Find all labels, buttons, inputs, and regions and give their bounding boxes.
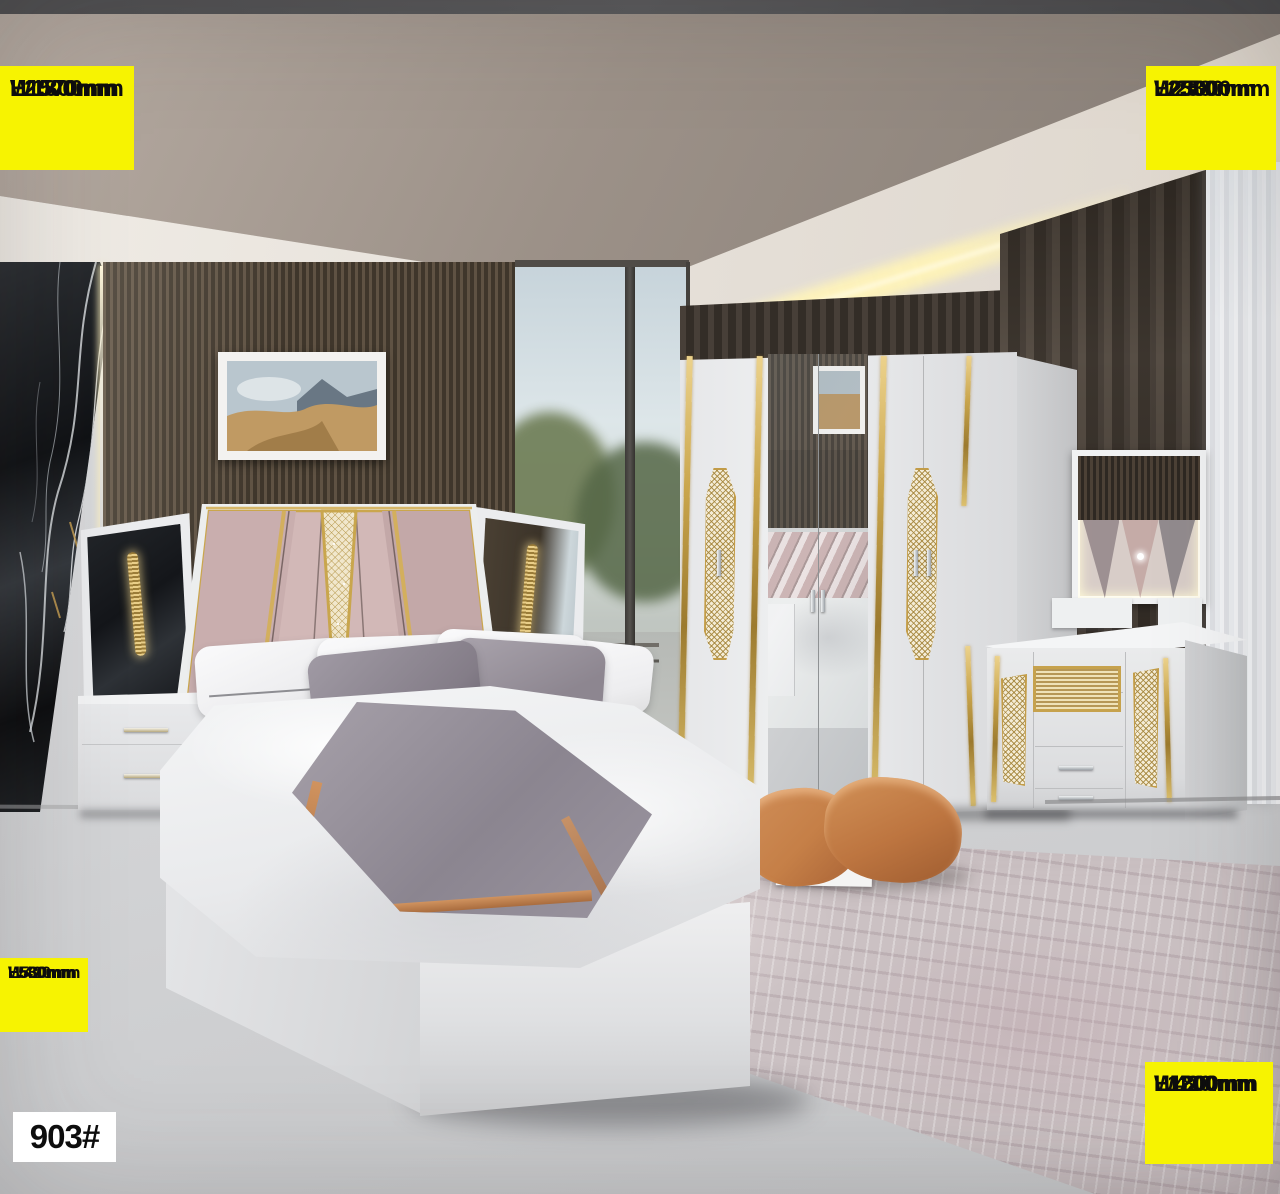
gold-trim	[991, 656, 1000, 802]
dimension-line: H23000mm	[1154, 73, 1270, 104]
door-handle	[821, 590, 825, 612]
dresser-seam	[1035, 746, 1123, 747]
wardrobe-mirror-doors	[768, 354, 868, 806]
dimension-label-bottom-left: L580mm W420mm H530mm	[0, 958, 88, 1032]
door-handle	[717, 550, 721, 576]
wall-art-frame	[218, 352, 386, 460]
product-code-label: 903#	[13, 1112, 116, 1162]
dresser-side-panel	[1185, 640, 1247, 820]
wall-art-landscape	[227, 361, 377, 451]
dresser	[985, 618, 1247, 818]
pendant-light-reflection	[127, 552, 147, 657]
door-handle	[927, 550, 931, 576]
dimension-line: H530mm	[8, 963, 77, 984]
vanity-reflection-shape	[1083, 520, 1120, 598]
dimension-label-top-right: L2580mm W2580mm H23000mm	[1146, 66, 1276, 170]
drawer-handle	[124, 728, 168, 732]
gold-trim	[1163, 658, 1172, 802]
dimension-line: H1570mm	[10, 73, 119, 104]
dimension-line: H1800mm	[1154, 1069, 1258, 1099]
dimension-label-top-left: L2000mm W1800mm H1570mm	[0, 66, 134, 170]
vanity-reflection-shape	[1159, 520, 1196, 598]
dresser-gold-drawer	[1033, 666, 1121, 712]
vanity-led-sparkle	[1137, 553, 1144, 560]
vanity-mirror	[1072, 450, 1206, 604]
dimension-label-bottom-right: L1200mm W420mm H1800mm	[1145, 1062, 1273, 1164]
vanity-reflection-slats	[1078, 456, 1200, 520]
bedroom-product-photo: L2000mm W1800mm H1570mm L2580mm W2580mm …	[0, 0, 1280, 1194]
dresser-mesh-insert	[1133, 668, 1159, 788]
door-handle	[914, 550, 918, 576]
vanity-mirror-glass	[1078, 456, 1200, 598]
window-frame-top	[515, 260, 689, 267]
mirror-door-seam	[818, 354, 819, 806]
drawer-handle	[1059, 766, 1093, 770]
ceiling-top-band	[0, 0, 1280, 14]
dresser-seam	[1125, 652, 1126, 808]
dresser-floor-shadow	[985, 810, 1237, 818]
door-mesh-plate	[704, 468, 736, 660]
door-mesh-plate	[906, 468, 938, 660]
door-handle	[811, 590, 815, 612]
pendant-light-reflection	[519, 544, 539, 645]
dresser-mesh-insert	[1001, 674, 1027, 786]
dresser-seam	[1035, 788, 1123, 789]
